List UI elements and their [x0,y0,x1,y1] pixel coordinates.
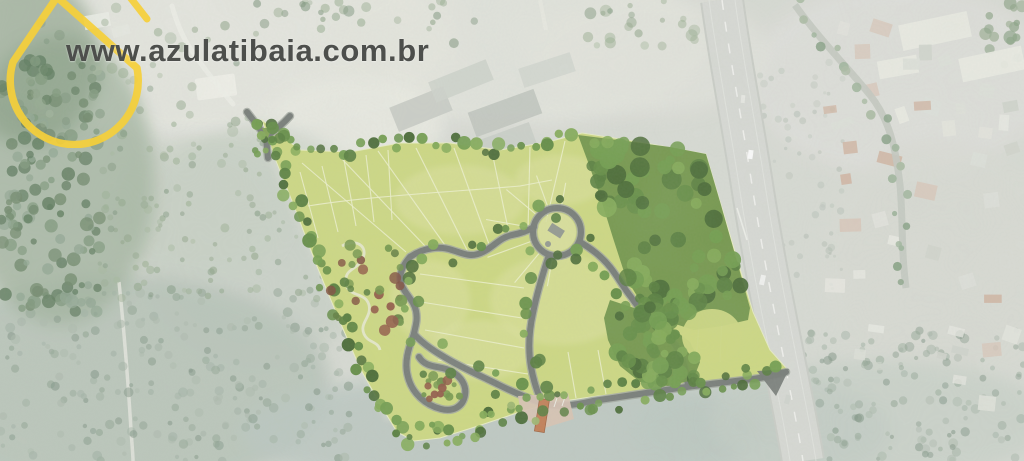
image-grain [0,0,1024,461]
aerial-screenshot: www.azulatibaia.com.br [0,0,1024,461]
aerial-map [0,0,1024,461]
